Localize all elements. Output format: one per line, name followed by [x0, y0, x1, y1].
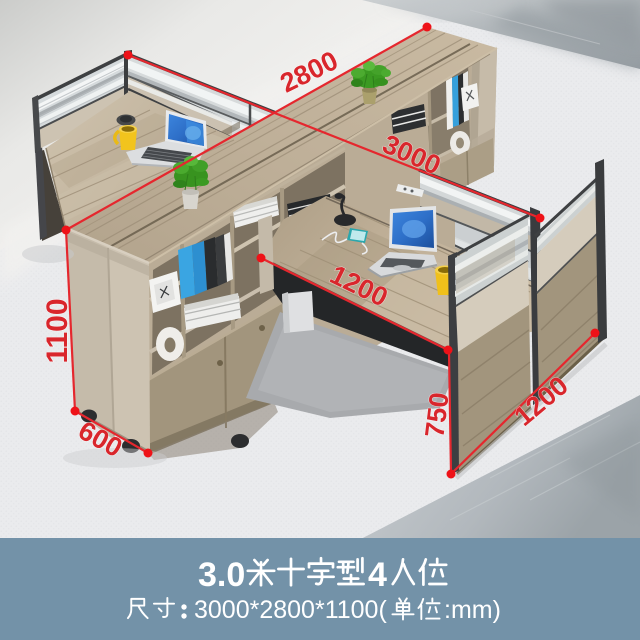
svg-text::mm): :mm) [444, 596, 501, 624]
svg-text:4: 4 [368, 556, 387, 594]
svg-text:750: 750 [419, 391, 454, 439]
svg-text:3000*2800*1100(: 3000*2800*1100( [194, 596, 387, 624]
svg-text:3.0: 3.0 [198, 556, 245, 594]
svg-text:1100: 1100 [41, 298, 74, 363]
